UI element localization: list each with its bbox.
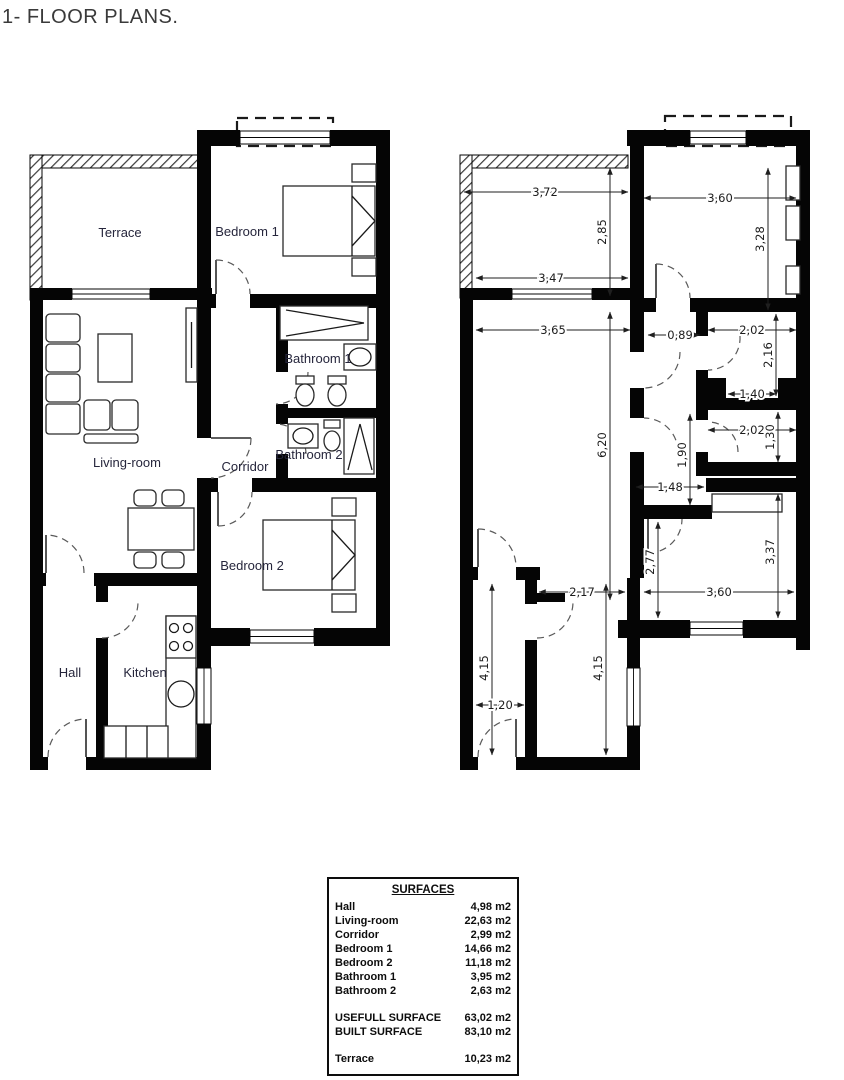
- dimension-label: 1,90: [675, 442, 689, 468]
- surface-value: 83,10 m2: [465, 1025, 511, 1039]
- window-bedroom1: [690, 131, 746, 144]
- room-label-bathroom2: Bathroom 2: [275, 447, 342, 462]
- surface-value: 3,95 m2: [471, 970, 511, 984]
- dimension-label: 1,20: [487, 698, 513, 712]
- surface-label: Bedroom 1: [335, 942, 392, 956]
- shower: [344, 418, 374, 474]
- dimension-label: 2,17: [569, 585, 595, 599]
- dimension-label: 4,15: [591, 655, 605, 681]
- dimension-label: 3,72: [532, 185, 558, 199]
- coffee-table: [98, 334, 132, 382]
- surface-row: Bedroom 2 11,18 m2: [335, 956, 511, 970]
- surface-label: Terrace: [335, 1052, 374, 1066]
- surface-total-row: USEFULL SURFACE 63,02 m2: [335, 1011, 511, 1025]
- dimension-label: 3,60: [707, 191, 733, 205]
- dimension-label: 2,02: [739, 323, 765, 337]
- room-label-bathroom1: Bathroom 1: [284, 351, 351, 366]
- right-floor-plan: 3,72 2,85 3,47 3,60 3,28 3,65 0,89 2,02 …: [460, 116, 810, 770]
- dimension-label: 0,89: [667, 328, 693, 342]
- closets: [712, 166, 800, 512]
- bed-1: [283, 164, 376, 276]
- dimension-label: 3,47: [538, 271, 564, 285]
- bed-2: [263, 498, 356, 612]
- surface-value: 22,63 m2: [465, 914, 511, 928]
- tv-unit: [186, 308, 197, 382]
- dimension-label: 2,85: [595, 219, 609, 245]
- dining-set: [128, 490, 194, 568]
- dimension-label: 1,48: [657, 480, 683, 494]
- surface-label: Hall: [335, 900, 355, 914]
- room-label-bedroom1: Bedroom 1: [215, 224, 279, 239]
- dimension-label: 3,60: [706, 585, 732, 599]
- dimension-label: 6,20: [595, 432, 609, 458]
- table-spacer: [335, 998, 511, 1011]
- surface-row: Bathroom 1 3,95 m2: [335, 970, 511, 984]
- surface-row: Corridor 2,99 m2: [335, 928, 511, 942]
- surfaces-table-title: SURFACES: [335, 883, 511, 897]
- surface-row: Bathroom 2 2,63 m2: [335, 984, 511, 998]
- room-label-corridor: Corridor: [222, 459, 270, 474]
- left-floor-plan: Terrace Bedroom 1 Living-room Corridor B…: [30, 118, 390, 770]
- sink-2: [288, 424, 318, 448]
- surface-label: Living-room: [335, 914, 399, 928]
- surface-value: 63,02 m2: [465, 1011, 511, 1025]
- room-label-bedroom2: Bedroom 2: [220, 558, 284, 573]
- surface-label: BUILT SURFACE: [335, 1025, 422, 1039]
- surface-label: Bedroom 2: [335, 956, 392, 970]
- dimension-label: 3,28: [753, 226, 767, 252]
- bathtub: [280, 306, 368, 340]
- dimension-label: 3,65: [540, 323, 566, 337]
- table-spacer: [335, 1039, 511, 1052]
- surface-value: 10,23 m2: [465, 1052, 511, 1066]
- bidet-1: [328, 376, 346, 406]
- window-kitchen: [627, 668, 640, 726]
- dimension-label: 2,16: [761, 342, 775, 368]
- dimension-label: 1,40: [739, 387, 765, 401]
- toilet-1: [296, 376, 314, 406]
- surface-row: Hall 4,98 m2: [335, 900, 511, 914]
- window-bedroom2: [690, 622, 743, 635]
- dimension-label: 1,30: [763, 424, 777, 450]
- room-label-terrace: Terrace: [98, 225, 141, 240]
- dimension-label: 2,77: [643, 549, 657, 575]
- window-bedroom2: [250, 630, 314, 643]
- room-label-kitchen: Kitchen: [123, 665, 166, 680]
- window-bedroom1: [240, 131, 330, 144]
- room-label-hall: Hall: [59, 665, 82, 680]
- surface-value: 2,99 m2: [471, 928, 511, 942]
- kitchen-counter: [104, 616, 196, 758]
- dimension-label: 2,02: [739, 423, 765, 437]
- surface-value: 2,63 m2: [471, 984, 511, 998]
- surface-label: Bathroom 1: [335, 970, 396, 984]
- surface-row: Terrace 10,23 m2: [335, 1052, 511, 1066]
- surface-value: 4,98 m2: [471, 900, 511, 914]
- surface-value: 11,18 m2: [465, 956, 511, 970]
- window-terrace: [72, 289, 150, 299]
- surfaces-table: SURFACES Hall 4,98 m2 Living-room 22,63 …: [327, 877, 519, 1076]
- dimension-label: 4,15: [477, 655, 491, 681]
- surface-label: Corridor: [335, 928, 379, 942]
- surface-value: 14,66 m2: [465, 942, 511, 956]
- window-terrace: [512, 289, 592, 299]
- surface-total-row: BUILT SURFACE 83,10 m2: [335, 1025, 511, 1039]
- surface-row: Bedroom 1 14,66 m2: [335, 942, 511, 956]
- surface-row: Living-room 22,63 m2: [335, 914, 511, 928]
- window-kitchen: [197, 668, 211, 724]
- room-label-living: Living-room: [93, 455, 161, 470]
- surface-label: Bathroom 2: [335, 984, 396, 998]
- surface-label: USEFULL SURFACE: [335, 1011, 441, 1025]
- dimension-label: 3,37: [763, 539, 777, 565]
